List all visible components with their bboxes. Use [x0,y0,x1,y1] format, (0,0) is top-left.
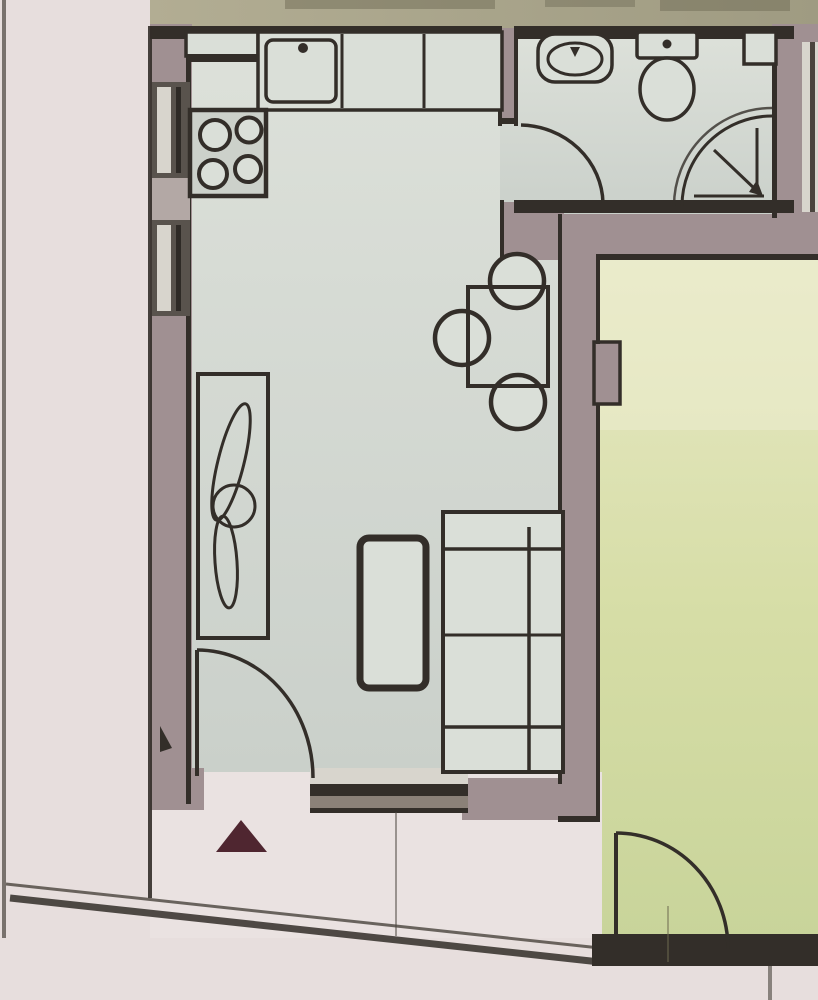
coffee-table [360,538,426,688]
bottom-right-frame-line [768,966,772,1000]
bedroom-bottom-wall [592,934,818,966]
stove-burner [199,160,227,188]
bedroom-top-wall-bottom-edge [596,254,818,260]
top-smudge [660,0,790,11]
stove-burner [200,120,230,150]
bottom-window-bottom-line [310,808,468,813]
round-chair-bottom [491,375,545,429]
left-wall-outer-edge [148,26,152,898]
bottom-window-glass-band [310,796,468,808]
kitchen-counter-run [258,32,502,110]
kitchen-sink-faucet-dot [298,43,308,53]
partition-wall-end-cap [558,816,600,822]
partition-wall-right-edge-upper [596,258,600,344]
bedroom-floor-highlight [600,260,818,430]
left-page-edge-line [2,0,6,1000]
stub-edge-right [514,26,518,126]
round-chair-left [435,311,489,365]
sofa [443,512,563,772]
window-pier [152,178,190,220]
stub-end-cap [498,118,518,124]
floor-plan-svg [0,0,818,1000]
window-upper-pane [157,87,171,173]
top-smudge [285,0,495,9]
kitchen-corner-cabinet [186,32,258,56]
adjacent-window-slot-line [810,42,815,212]
bathroom-bottom-wall-line [514,200,794,213]
stove-burner [237,118,262,143]
window-upper-frame-line [176,87,181,173]
window-lower-frame-line [176,225,181,311]
bottom-window-dark-band [310,784,468,796]
bottom-wall-right-piece [462,778,564,820]
top-smudge [545,0,635,7]
kitchen-corner-cabinet-edge [186,54,258,62]
partition-wall-right-edge-lower [596,404,600,822]
toilet-bowl [640,58,694,120]
toilet-tank-button [663,40,672,49]
stove-burner [235,156,261,182]
round-chair-top [490,254,544,308]
junction-left-edge [500,200,504,260]
floor-plan-photo [0,0,818,1000]
window-lower-pane [157,225,171,311]
duct-block [744,32,776,64]
wall-notch-pilaster [594,342,620,404]
